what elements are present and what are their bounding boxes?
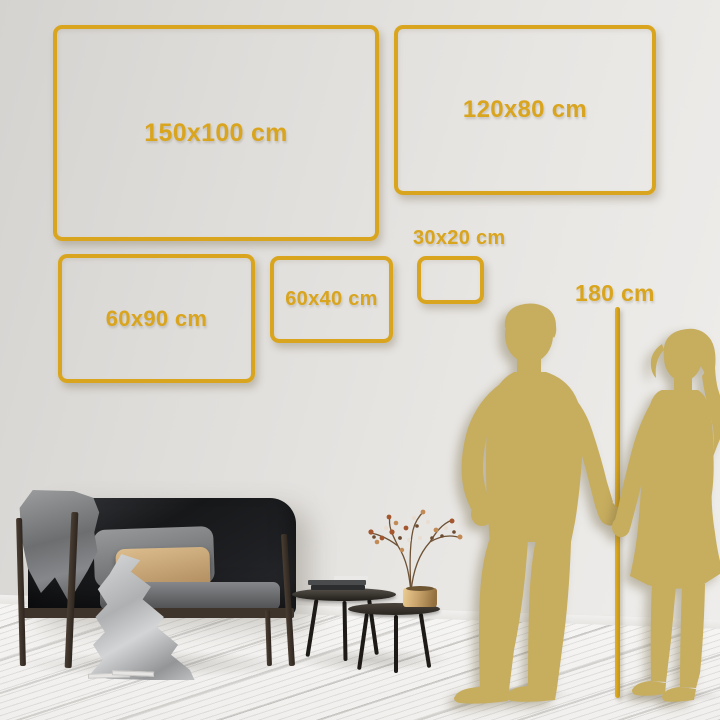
size-frame-label: 120x80 cm bbox=[463, 96, 587, 124]
woman-silhouette bbox=[604, 328, 720, 702]
size-guide-scene: 150x100 cm 120x80 cm 60x90 cm 60x40 cm 3… bbox=[0, 0, 720, 720]
size-frame-label: 60x40 cm bbox=[285, 288, 377, 311]
brass-vase bbox=[403, 588, 437, 607]
floor-books bbox=[88, 670, 154, 679]
table-books bbox=[308, 576, 370, 590]
size-frame-label: 150x100 cm bbox=[144, 119, 287, 148]
size-frame-label: 30x20 cm bbox=[413, 227, 505, 250]
size-frame-60x90: 60x90 cm bbox=[58, 254, 255, 383]
size-frame-60x40: 60x40 cm bbox=[270, 256, 393, 343]
size-frame-label: 60x90 cm bbox=[106, 306, 208, 332]
size-frame-150x100: 150x100 cm bbox=[53, 25, 379, 241]
sofa-leg bbox=[265, 610, 272, 666]
table-leg bbox=[394, 615, 398, 673]
size-frame-120x80: 120x80 cm bbox=[394, 25, 656, 195]
book bbox=[311, 585, 365, 590]
size-frame-30x20 bbox=[417, 256, 484, 304]
sofa bbox=[8, 488, 310, 688]
man-silhouette bbox=[450, 302, 626, 704]
